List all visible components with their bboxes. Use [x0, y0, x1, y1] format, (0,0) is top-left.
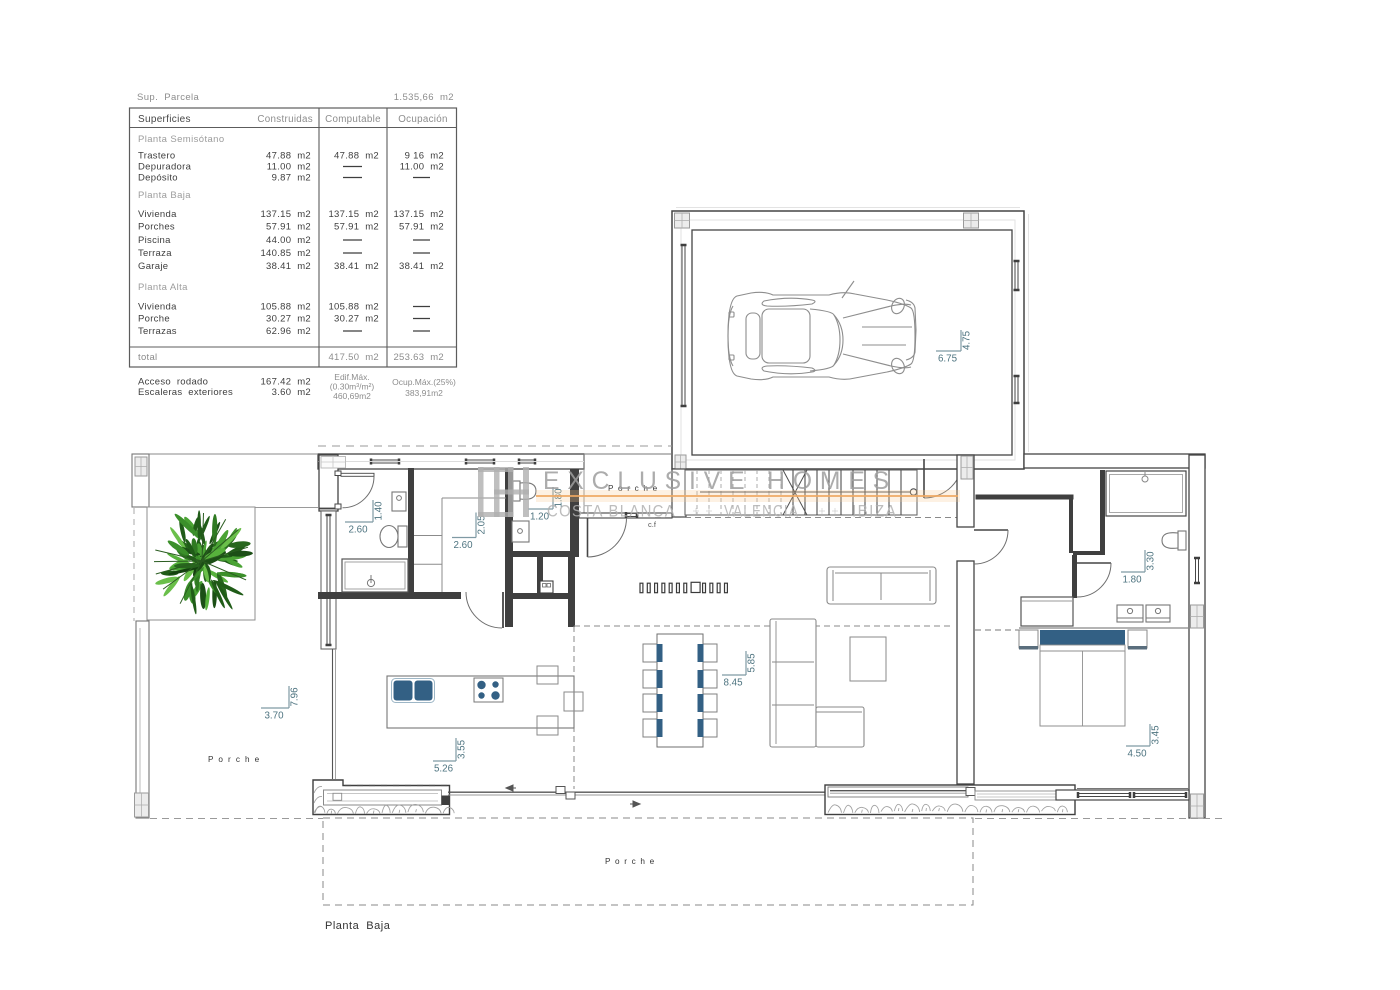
svg-text:Piscina: Piscina — [138, 235, 171, 246]
svg-text:1.535,66 m2: 1.535,66 m2 — [394, 92, 454, 103]
svg-text:57.91 m2: 57.91 m2 — [399, 222, 444, 233]
svg-text:460,69m2: 460,69m2 — [333, 391, 371, 401]
svg-text:Garaje: Garaje — [138, 261, 168, 272]
svg-text:Planta Alta: Planta Alta — [138, 282, 188, 293]
svg-text:Porche: Porche — [138, 314, 170, 325]
svg-text:38.41 m2: 38.41 m2 — [334, 261, 379, 272]
svg-text:Terraza: Terraza — [138, 248, 172, 259]
svg-text:Terrazas: Terrazas — [138, 326, 177, 337]
svg-text:62.96 m2: 62.96 m2 — [266, 326, 311, 337]
svg-text:IBIZA: IBIZA — [852, 502, 897, 521]
svg-text:137.15 m2: 137.15 m2 — [393, 209, 444, 220]
svg-text:140.85 m2: 140.85 m2 — [260, 248, 311, 259]
svg-text:1.40: 1.40 — [374, 501, 385, 521]
svg-text:383,91m2: 383,91m2 — [405, 388, 443, 398]
svg-text:Computable: Computable — [325, 114, 381, 125]
svg-text:5.85: 5.85 — [747, 653, 758, 673]
svg-text:137.15 m2: 137.15 m2 — [328, 209, 379, 220]
svg-text:Depuradora: Depuradora — [138, 162, 192, 173]
svg-text:2.60: 2.60 — [348, 525, 368, 536]
svg-text:11.00 m2: 11.00 m2 — [400, 162, 444, 173]
svg-text:417.50 m2: 417.50 m2 — [328, 352, 379, 363]
svg-text:47.88 m2: 47.88 m2 — [334, 151, 379, 162]
svg-text:Depósito: Depósito — [138, 173, 178, 184]
svg-text:4.75: 4.75 — [962, 330, 973, 350]
svg-text:47.88 m2: 47.88 m2 — [266, 151, 311, 162]
svg-text:8.45: 8.45 — [723, 678, 743, 689]
svg-text:30.27 m2: 30.27 m2 — [266, 314, 311, 325]
svg-text:c.f: c.f — [648, 520, 657, 529]
svg-text:6.75: 6.75 — [938, 354, 958, 365]
svg-text:30.27 m2: 30.27 m2 — [334, 314, 379, 325]
svg-text:5.26: 5.26 — [434, 764, 454, 775]
svg-text:105.88 m2: 105.88 m2 — [260, 302, 311, 313]
svg-text:4.50: 4.50 — [1127, 749, 1147, 760]
svg-text:3.30: 3.30 — [1146, 551, 1157, 571]
svg-text:Vivienda: Vivienda — [138, 209, 177, 220]
svg-text:57.91 m2: 57.91 m2 — [334, 222, 379, 233]
svg-text:105.88 m2: 105.88 m2 — [328, 302, 379, 313]
svg-text:P o r c h e: P o r c h e — [605, 857, 655, 866]
svg-text:Construidas: Construidas — [257, 114, 313, 125]
svg-text:167.42 m2: 167.42 m2 — [260, 377, 311, 388]
svg-text:57.91 m2: 57.91 m2 — [266, 222, 311, 233]
svg-text:38.41 m2: 38.41 m2 — [399, 261, 444, 272]
svg-text:38.41 m2: 38.41 m2 — [266, 261, 311, 272]
svg-text:2.05: 2.05 — [477, 515, 488, 535]
svg-text:Sup. Parcela: Sup. Parcela — [137, 92, 200, 103]
svg-text:total: total — [138, 352, 157, 363]
svg-text:Edif.Máx.: Edif.Máx. — [334, 372, 369, 382]
svg-text:44.00 m2: 44.00 m2 — [266, 235, 311, 246]
svg-text:Acceso rodado: Acceso rodado — [138, 377, 208, 388]
svg-text:3.70: 3.70 — [264, 711, 284, 722]
svg-text:VALENCIA: VALENCIA — [724, 502, 799, 521]
svg-text:Planta Semisótano: Planta Semisótano — [138, 134, 225, 145]
svg-text:(0.30m³/m²): (0.30m³/m²) — [330, 382, 375, 392]
svg-text:9.87 m2: 9.87 m2 — [272, 173, 311, 184]
svg-text:Vivienda: Vivienda — [138, 302, 177, 313]
svg-text:9 16 m2: 9 16 m2 — [405, 151, 444, 162]
svg-text:3.55: 3.55 — [457, 739, 468, 759]
svg-text:Porches: Porches — [138, 222, 175, 233]
svg-text:Ocupación: Ocupación — [398, 114, 448, 125]
svg-text:7.96: 7.96 — [290, 687, 301, 707]
svg-text:Escaleras exteriores: Escaleras exteriores — [138, 387, 233, 398]
svg-text:P o r c h e: P o r c h e — [208, 755, 261, 764]
svg-text:253.63 m2: 253.63 m2 — [393, 352, 444, 363]
svg-text:137.15 m2: 137.15 m2 — [260, 209, 311, 220]
svg-text:Trastero: Trastero — [138, 151, 175, 162]
svg-text:Superficies: Superficies — [138, 114, 191, 125]
svg-text:Planta Baja: Planta Baja — [138, 190, 191, 201]
svg-text:COSTA BLANCA: COSTA BLANCA — [547, 502, 676, 521]
svg-text:3.45: 3.45 — [1151, 725, 1162, 745]
svg-text:Ocup.Máx.(25%): Ocup.Máx.(25%) — [392, 377, 456, 387]
svg-text:11.00 m2: 11.00 m2 — [267, 162, 311, 173]
svg-text:3.60 m2: 3.60 m2 — [272, 387, 311, 398]
svg-text:EXCLUSIVE HOMES: EXCLUSIVE HOMES — [543, 467, 897, 495]
svg-text:2.60: 2.60 — [453, 540, 473, 551]
svg-text:Planta Baja: Planta Baja — [325, 920, 391, 932]
svg-text:1.80: 1.80 — [1122, 575, 1142, 586]
